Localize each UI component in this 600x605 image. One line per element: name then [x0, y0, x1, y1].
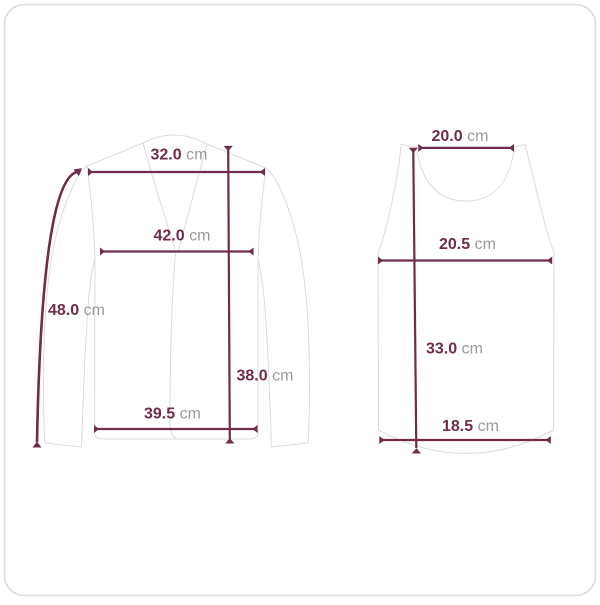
svg-text:18.5 cm: 18.5 cm [442, 418, 499, 435]
svg-text:20.5 cm: 20.5 cm [439, 236, 496, 253]
svg-text:38.0 cm: 38.0 cm [237, 368, 294, 385]
svg-text:20.0 cm: 20.0 cm [432, 128, 489, 145]
svg-text:48.0 cm: 48.0 cm [48, 302, 105, 319]
svg-text:39.5 cm: 39.5 cm [144, 406, 201, 423]
svg-text:32.0 cm: 32.0 cm [151, 147, 208, 164]
svg-text:42.0 cm: 42.0 cm [154, 228, 211, 245]
svg-text:33.0 cm: 33.0 cm [426, 341, 483, 358]
